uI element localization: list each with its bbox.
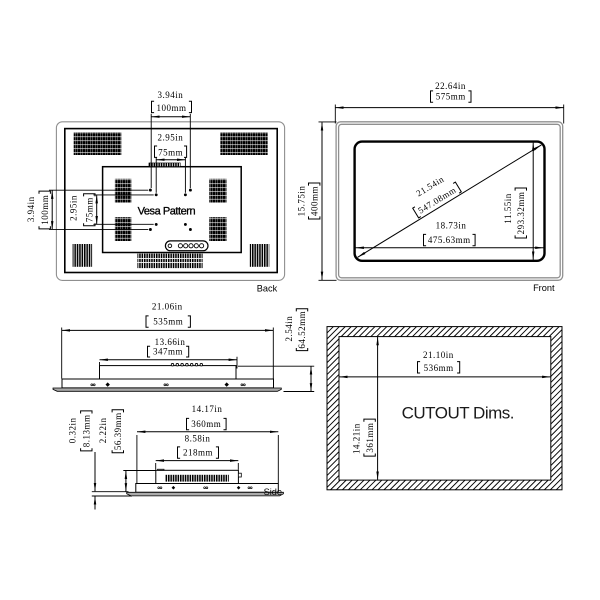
svg-text:347mm: 347mm bbox=[153, 347, 183, 357]
svg-text:2.95in: 2.95in bbox=[69, 195, 79, 221]
svg-text:21.10in: 21.10in bbox=[423, 350, 454, 360]
svg-text:56.39mm: 56.39mm bbox=[113, 412, 123, 450]
svg-text:CUTOUT Dims.: CUTOUT Dims. bbox=[402, 403, 514, 422]
svg-text:21.06in: 21.06in bbox=[152, 302, 183, 312]
svg-text:218mm: 218mm bbox=[183, 447, 213, 457]
svg-text:535mm: 535mm bbox=[153, 316, 183, 326]
svg-text:13.66in: 13.66in bbox=[155, 337, 186, 347]
svg-text:11.55in: 11.55in bbox=[503, 193, 513, 223]
svg-text:100mm: 100mm bbox=[40, 195, 50, 225]
svg-text:0.32in: 0.32in bbox=[68, 418, 78, 444]
svg-text:8.13mm: 8.13mm bbox=[82, 415, 92, 448]
svg-text:15.75in: 15.75in bbox=[297, 186, 307, 217]
svg-text:75mm: 75mm bbox=[158, 147, 183, 157]
svg-text:2.54in: 2.54in bbox=[284, 316, 294, 342]
svg-text:2.95in: 2.95in bbox=[158, 133, 184, 143]
svg-text:360mm: 360mm bbox=[191, 419, 221, 429]
svg-text:14.21in: 14.21in bbox=[352, 423, 362, 454]
svg-text:293.32mm: 293.32mm bbox=[516, 192, 526, 235]
svg-text:Back: Back bbox=[257, 283, 278, 293]
svg-text:475.63mm: 475.63mm bbox=[428, 235, 471, 245]
svg-text:Vesa Pattern: Vesa Pattern bbox=[138, 206, 196, 218]
svg-text:8.58in: 8.58in bbox=[185, 433, 211, 443]
svg-text:400mm: 400mm bbox=[309, 186, 319, 216]
svg-text:22.64in: 22.64in bbox=[435, 81, 466, 91]
svg-text:2.22in: 2.22in bbox=[98, 418, 108, 444]
svg-text:64.52mm: 64.52mm bbox=[297, 311, 307, 349]
svg-text:3.94in: 3.94in bbox=[26, 196, 36, 222]
svg-text:Side: Side bbox=[264, 487, 282, 497]
svg-text:Front: Front bbox=[533, 283, 555, 293]
svg-text:536mm: 536mm bbox=[424, 363, 454, 373]
svg-text:3.94in: 3.94in bbox=[158, 90, 184, 100]
svg-text:18.73in: 18.73in bbox=[436, 220, 467, 230]
svg-text:575mm: 575mm bbox=[436, 92, 466, 102]
svg-text:14.17in: 14.17in bbox=[192, 404, 223, 414]
svg-text:100mm: 100mm bbox=[156, 103, 186, 113]
svg-text:75mm: 75mm bbox=[84, 197, 94, 222]
svg-text:361mm: 361mm bbox=[365, 423, 375, 453]
